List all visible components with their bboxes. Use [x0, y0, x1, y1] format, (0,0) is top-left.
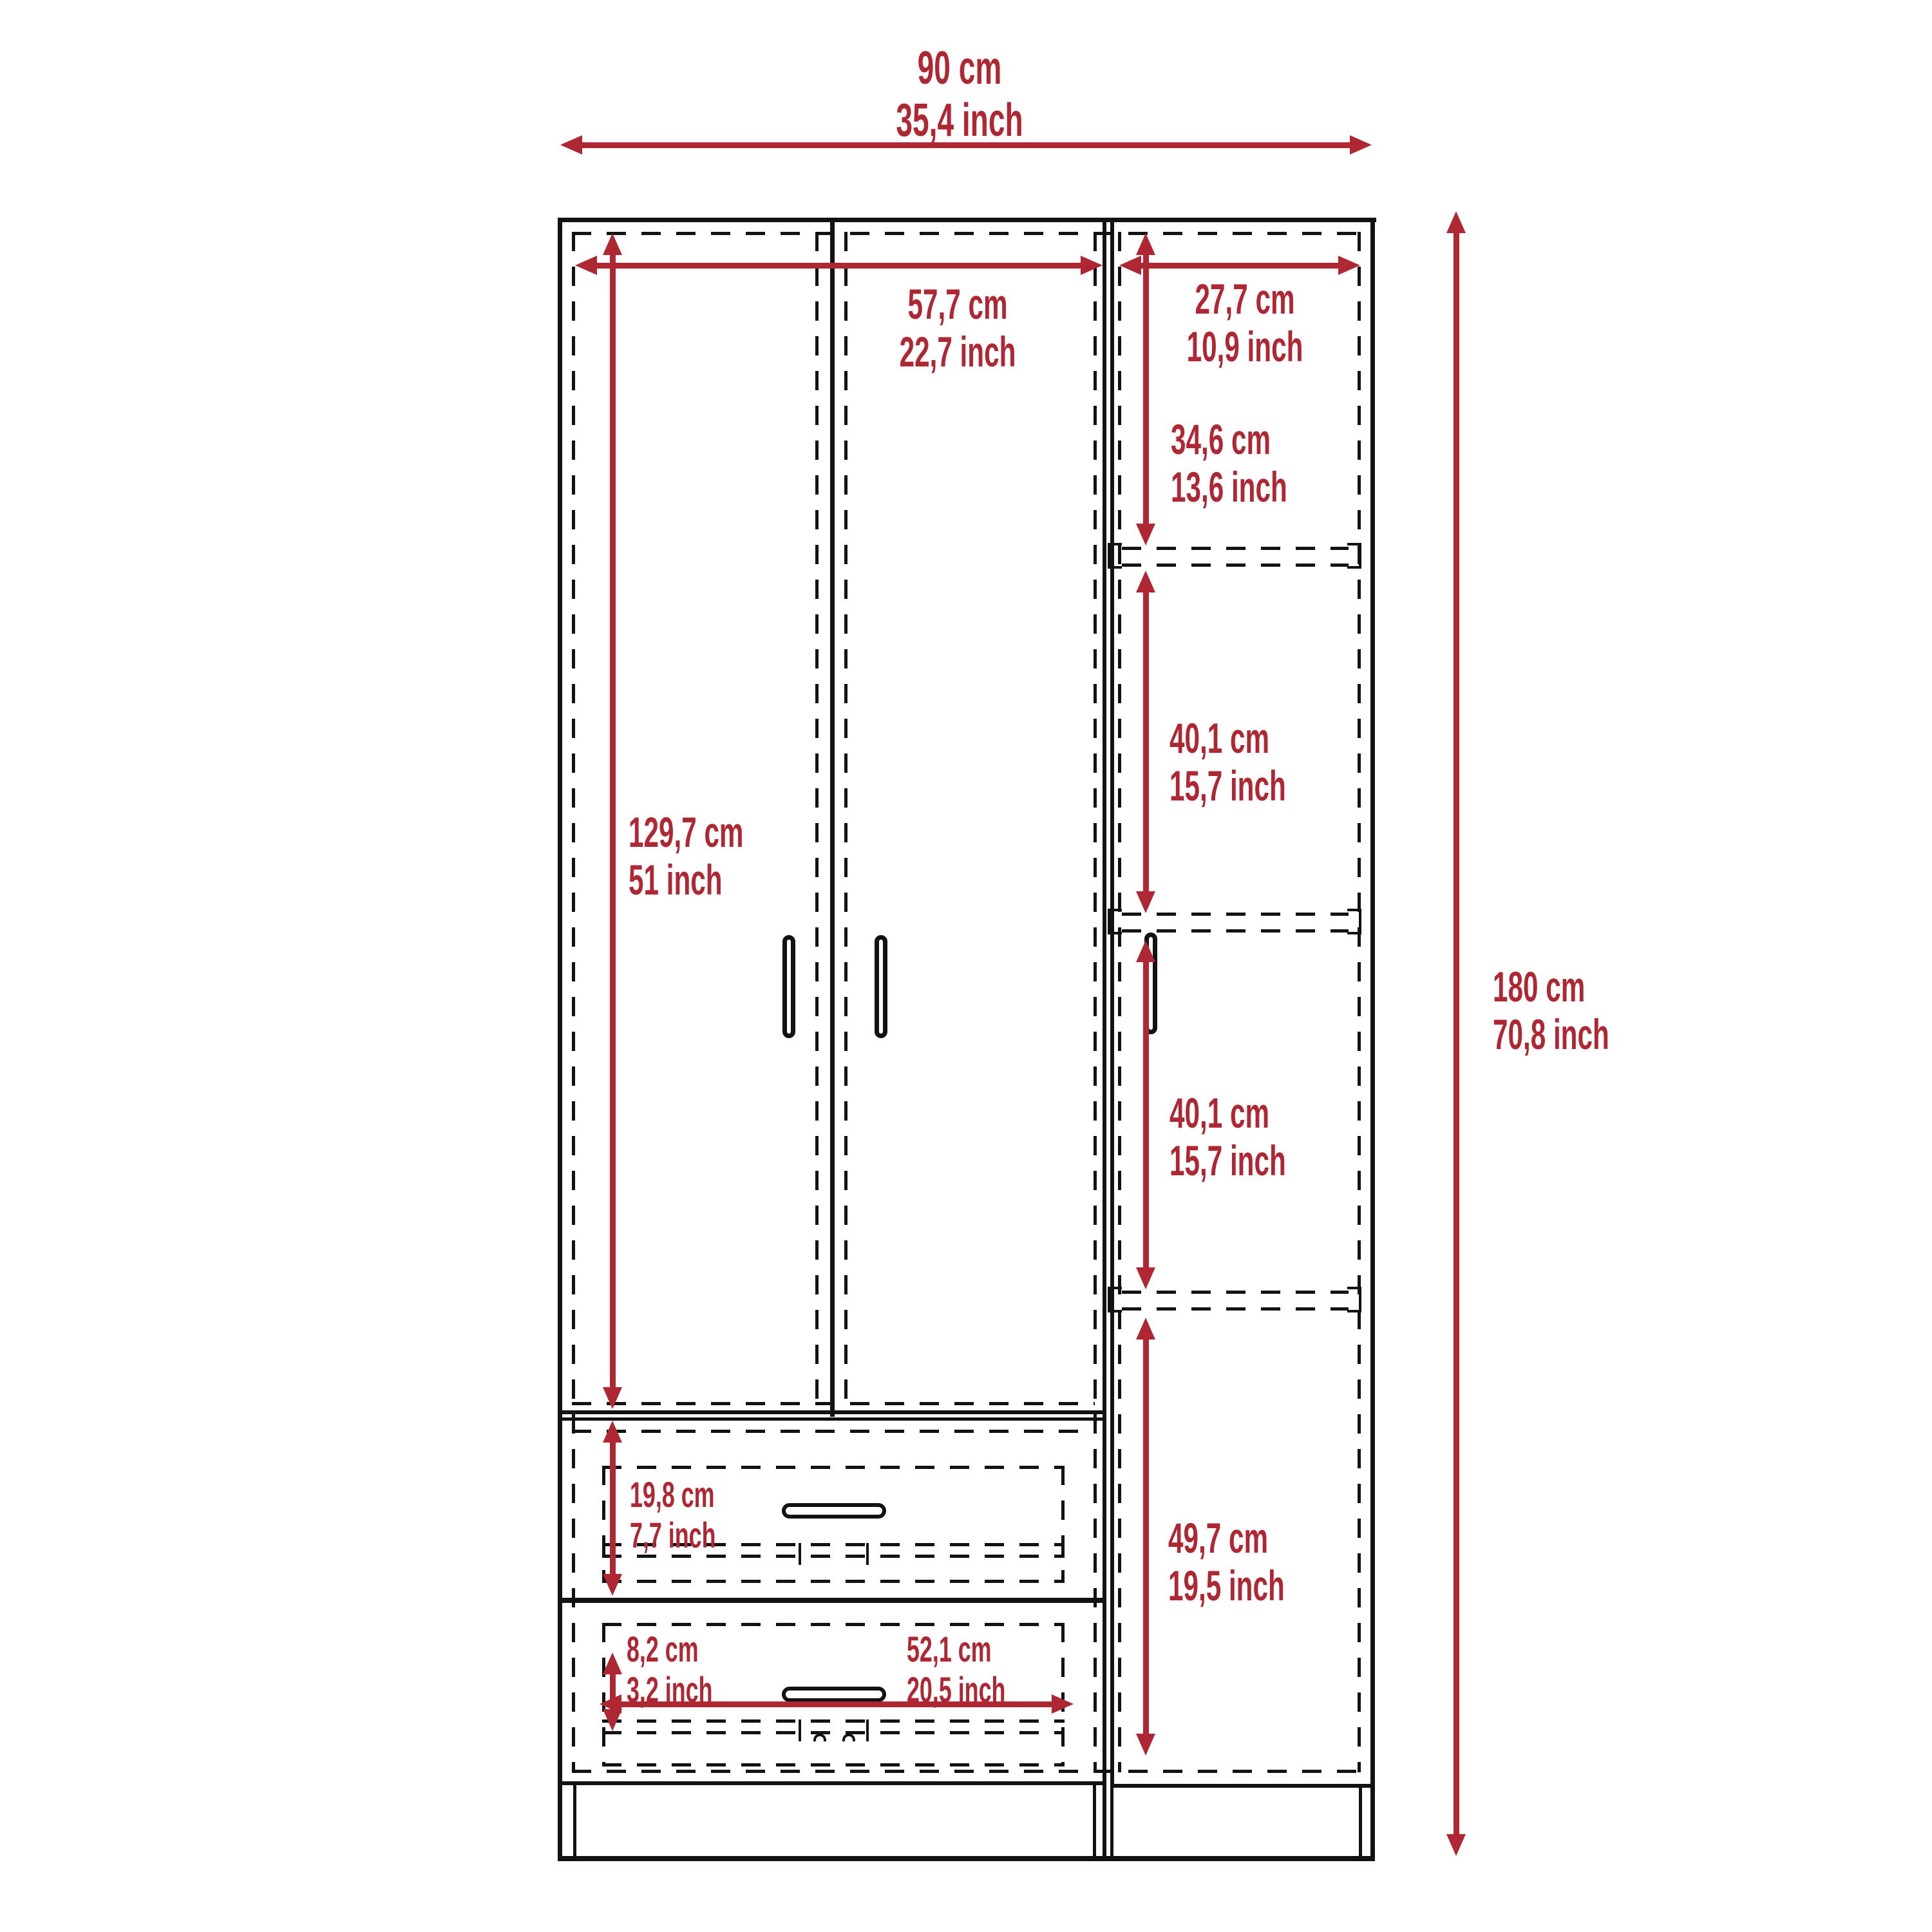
shelf1-bracket-left [1108, 543, 1122, 569]
drawer2-keyhole-a [813, 1734, 826, 1741]
drawer2-rail-mark-b [866, 1719, 869, 1741]
arrowhead-right-icon [1350, 135, 1372, 155]
side-section-width-inch: 10,9 inch [1162, 323, 1327, 371]
lower-shelf-height-label: 40,1 cm 15,7 inch [1170, 1090, 1286, 1185]
overall-width-cm: 90 cm [877, 43, 1042, 95]
arrowhead-up-icon [1136, 1318, 1155, 1340]
dashed-shelf1-top [1122, 547, 1349, 550]
arrow-side-section-width [1140, 263, 1340, 269]
drawer-inner-height-label: 8,2 cm 3,2 inch [627, 1629, 712, 1710]
arrow-door-height [610, 254, 616, 1389]
top-shelf-height-inch: 13,6 inch [1171, 464, 1287, 511]
middle-shelf-height-cm: 40,1 cm [1170, 715, 1286, 762]
shelf3-bracket-left [1108, 1287, 1122, 1312]
dashed-shelf2-top [1122, 913, 1349, 916]
dashed-door2-left [844, 232, 848, 1405]
left-door-handle [782, 935, 795, 1038]
door-divider [830, 222, 835, 1417]
shelf3-bracket-right [1347, 1287, 1361, 1312]
door-section-width-cm: 57,7 cm [875, 281, 1040, 328]
drawer1-rail-mark-b [866, 1543, 869, 1565]
doors-bottom-edge [558, 1410, 1106, 1414]
dashed-drawer2-rail-b [602, 1731, 1065, 1734]
arrowhead-up-icon [603, 233, 622, 255]
base-leg-right [1359, 1788, 1362, 1856]
dashed-drawer2-box-top [602, 1623, 1065, 1626]
arrowhead-down-icon [1446, 1834, 1466, 1856]
arrow-top-shelf-height [1143, 254, 1149, 526]
middle-shelf-height-inch: 15,7 inch [1170, 762, 1286, 810]
drawer-width-label: 52,1 cm 20,5 inch [907, 1629, 1005, 1710]
dashed-door1-right [815, 232, 819, 1405]
arrow-overall-height [1454, 232, 1459, 1837]
drawer-inner-height-inch: 3,2 inch [627, 1670, 712, 1710]
arrowhead-up-icon [1136, 233, 1155, 255]
arrow-lower-shelf-height [1143, 961, 1149, 1270]
arrowhead-up-icon [603, 1421, 622, 1443]
dashed-inner-bottom [572, 1770, 1359, 1773]
bottom-shelf-height-inch: 19,5 inch [1168, 1562, 1285, 1610]
dashed-shelf3-top [1122, 1291, 1349, 1294]
drawer-section-top-edge [558, 1417, 1106, 1421]
drawer-height-label: 19,8 cm 7,7 inch [630, 1475, 715, 1555]
drawer1-handle [782, 1503, 886, 1519]
arrowhead-down-icon [1136, 1267, 1155, 1289]
dashed-drawer1-box-top [602, 1466, 1065, 1469]
middle-door-handle [875, 935, 887, 1038]
side-section-width-label: 27,7 cm 10,9 inch [1162, 276, 1327, 371]
door-height-cm: 129,7 cm [629, 809, 743, 857]
arrow-bottom-shelf-height [1143, 1338, 1149, 1736]
middle-shelf-height-label: 40,1 cm 15,7 inch [1170, 715, 1286, 810]
dashed-inner-top [572, 232, 1359, 235]
arrowhead-right-icon [1052, 1694, 1074, 1714]
cabinet-top-edge [558, 218, 1376, 222]
bottom-shelf-height-cm: 49,7 cm [1168, 1515, 1285, 1562]
base-leg-mid-left [1093, 1785, 1096, 1856]
top-shelf-height-cm: 34,6 cm [1171, 416, 1287, 464]
door-section-width-inch: 22,7 inch [875, 328, 1040, 376]
dashed-drawer2-box-bottom [602, 1763, 1065, 1766]
dashed-drawer1-box-right [1061, 1466, 1065, 1583]
dashed-shelf2-bottom [1122, 929, 1349, 933]
arrowhead-up-icon [603, 1653, 622, 1674]
wardrobe-dimension-diagram: 90 cm 35,4 inch 57,7 cm 22,7 inch 27,7 c… [0, 0, 1932, 1932]
arrowhead-right-icon [1081, 256, 1103, 275]
arrow-drawer-height [610, 1441, 616, 1577]
arrowhead-left-icon [575, 256, 597, 275]
door-section-width-label: 57,7 cm 22,7 inch [875, 281, 1040, 376]
arrow-middle-shelf-height [1143, 591, 1149, 894]
arrowhead-down-icon [603, 1574, 622, 1596]
drawer-divider-edge [558, 1598, 1106, 1603]
side-section-bottom-edge [1110, 1784, 1375, 1788]
base-bottom-edge [558, 1856, 1375, 1861]
arrowhead-up-icon [1446, 211, 1466, 233]
dashed-shelf3-bottom [1122, 1307, 1349, 1311]
overall-height-inch: 70,8 inch [1493, 1011, 1609, 1059]
lower-shelf-height-inch: 15,7 inch [1170, 1137, 1286, 1185]
drawer2-rail-mark-a [799, 1719, 801, 1741]
drawer-height-cm: 19,8 cm [630, 1475, 715, 1515]
drawer-section-bottom-edge [558, 1781, 1106, 1785]
drawer-height-inch: 7,7 inch [630, 1515, 715, 1556]
arrow-door-section-width [596, 263, 1083, 269]
dashed-drawer2-rail-a [602, 1719, 1065, 1723]
drawer-width-cm: 52,1 cm [907, 1629, 1005, 1670]
dashed-drawer2-box-right [1061, 1623, 1065, 1763]
arrowhead-up-icon [1136, 940, 1155, 962]
drawer2-keyhole-b [842, 1734, 855, 1741]
overall-width-inch: 35,4 inch [877, 95, 1042, 147]
top-shelf-height-label: 34,6 cm 13,6 inch [1171, 416, 1287, 511]
dashed-drawer1-top [572, 1430, 1095, 1433]
bottom-shelf-height-label: 49,7 cm 19,5 inch [1168, 1515, 1285, 1610]
drawer2-handle [782, 1687, 886, 1702]
arrowhead-up-icon [1136, 571, 1155, 592]
dashed-inner-right [1358, 232, 1361, 1772]
base-leg-left [573, 1785, 576, 1856]
dashed-doors-bottom [572, 1402, 1095, 1405]
dashed-drawer1-box-bottom [602, 1580, 1065, 1583]
dashed-drawer1-box-left [602, 1466, 605, 1583]
drawer1-rail-mark-a [799, 1543, 801, 1565]
cabinet-left-edge [558, 218, 562, 1861]
drawer-width-inch: 20,5 inch [907, 1670, 1005, 1710]
overall-height-cm: 180 cm [1493, 963, 1609, 1011]
arrowhead-left-icon [600, 1694, 621, 1714]
overall-height-label: 180 cm 70,8 inch [1493, 963, 1609, 1059]
dashed-main-inner-right [1094, 232, 1097, 1770]
door-height-inch: 51 inch [629, 857, 743, 904]
side-section-left-wall [1110, 222, 1114, 1786]
dashed-inner-left [572, 232, 575, 1772]
arrowhead-down-icon [1136, 891, 1155, 913]
arrowhead-down-icon [603, 1387, 622, 1409]
side-section-width-cm: 27,7 cm [1162, 276, 1327, 323]
main-section-right-wall [1103, 218, 1106, 1861]
arrowhead-down-icon [1136, 524, 1155, 545]
shelf2-bracket-left [1108, 909, 1122, 934]
arrowhead-left-icon [1119, 256, 1141, 275]
cabinet-right-edge [1370, 218, 1375, 1861]
arrowhead-left-icon [560, 135, 582, 155]
shelf2-bracket-right [1347, 909, 1361, 934]
arrowhead-down-icon [1136, 1734, 1155, 1756]
base-leg-mid-right [1110, 1788, 1113, 1856]
overall-width-label: 90 cm 35,4 inch [877, 43, 1042, 146]
shelf1-bracket-right [1347, 543, 1361, 569]
drawer-inner-height-cm: 8,2 cm [627, 1629, 712, 1670]
door-height-label: 129,7 cm 51 inch [629, 809, 743, 904]
lower-shelf-height-cm: 40,1 cm [1170, 1090, 1286, 1137]
dashed-side-door-left [1118, 232, 1121, 1772]
dashed-drawer2-box-left [602, 1623, 605, 1763]
dashed-shelf1-bottom [1122, 563, 1349, 567]
arrowhead-right-icon [1338, 256, 1360, 275]
